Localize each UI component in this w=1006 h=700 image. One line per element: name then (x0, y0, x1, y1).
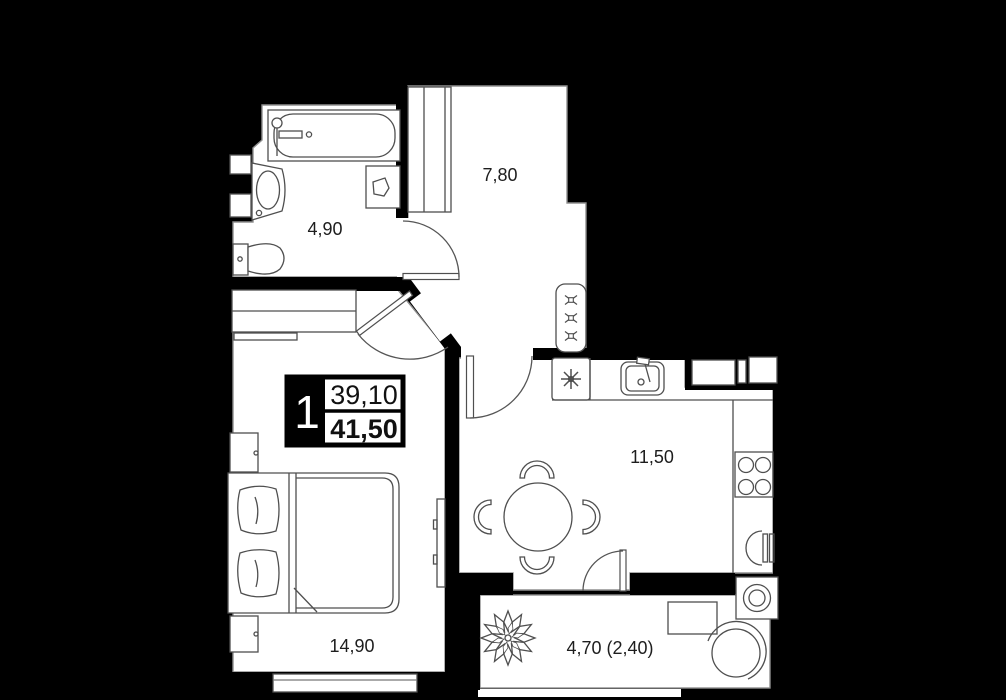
bedroom-area-label: 14,90 (329, 636, 374, 656)
shaft-kitchen-narrow (738, 360, 746, 383)
shaft-left-top (230, 155, 251, 174)
nightstand-icon (230, 616, 258, 652)
bathroom-sink-icon (252, 163, 285, 220)
bedroom-wardrobe-icon (232, 290, 356, 340)
hallway-area-label: 7,80 (482, 165, 517, 185)
nightstand-icon (230, 433, 258, 472)
floorplan-svg: 4,90 7,80 11,50 14,90 4,70 (2,40) 1 39,1… (0, 0, 1006, 700)
kitchen-sink-icon (621, 357, 664, 395)
dining-table-icon (504, 483, 572, 551)
wall-kitchen-balcony-right (630, 573, 735, 595)
bathroom-area-label: 4,90 (307, 219, 342, 239)
radiator-icon (556, 284, 586, 352)
pillow-icon (238, 550, 279, 597)
wall-kitchen-balcony-left (452, 573, 513, 595)
bathroom-door-opening (397, 218, 409, 277)
washing-machine-icon (736, 577, 778, 619)
bedroom-window (273, 674, 417, 692)
wall-bedroom-kitchen (445, 347, 459, 690)
floorplan-screenshot: 4,90 7,80 11,50 14,90 4,70 (2,40) 1 39,1… (0, 0, 1006, 700)
toilet-icon (233, 244, 284, 275)
hob-asterisk-icon (561, 369, 581, 389)
unit-badge: 1 39,10 41,50 (287, 377, 403, 445)
wall-bath-bedroom (225, 277, 406, 291)
balcony-railing (478, 689, 681, 697)
wall-kitchen-right (773, 385, 790, 578)
kitchen-area-label: 11,50 (630, 447, 674, 467)
hallway-furniture (408, 87, 451, 212)
badge-rooms-count: 1 (294, 386, 320, 438)
water-heater-icon (366, 166, 400, 208)
badge-total-area: 41,50 (330, 414, 398, 444)
shaft-left-bottom (230, 194, 251, 217)
pillow-icon (238, 486, 279, 534)
badge-living-area: 39,10 (330, 380, 398, 410)
bed-icon (228, 473, 399, 613)
shaft-kitchen-square (749, 357, 777, 383)
kitchen-floor (459, 358, 773, 590)
shaft-kitchen-wide (692, 360, 735, 385)
balcony-area-label: 4,70 (2,40) (566, 638, 653, 658)
